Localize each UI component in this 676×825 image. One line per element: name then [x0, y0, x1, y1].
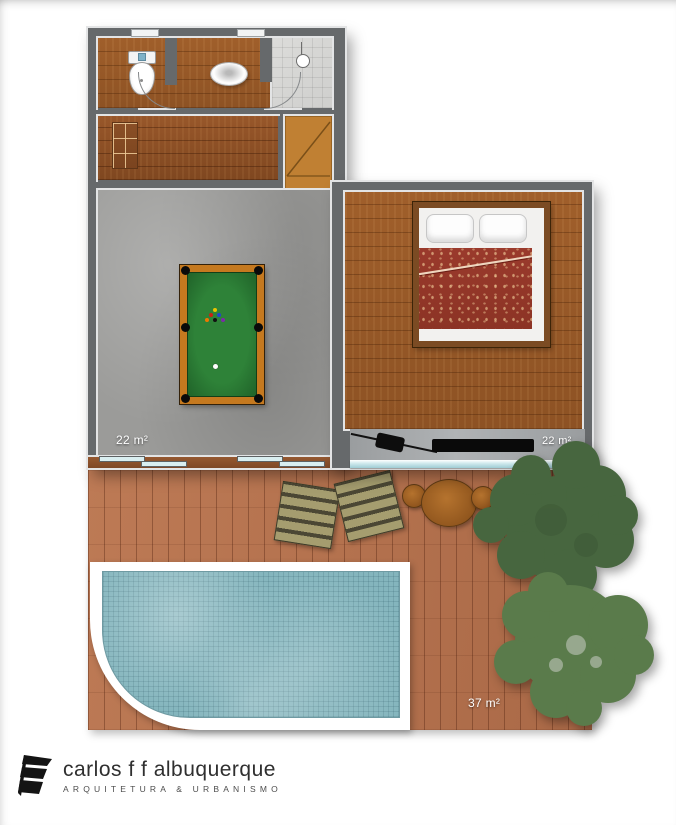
wall-segment [98, 180, 278, 190]
game-room-area-label: 22 m² [116, 433, 148, 447]
swimming-pool [90, 562, 410, 730]
deck-lounger-2 [334, 470, 405, 542]
sliding-glass-door [142, 462, 186, 466]
sliding-glass-door [238, 457, 282, 461]
exterior-wall [88, 455, 345, 468]
billiard-ball [221, 318, 225, 322]
bedroom-wing: 22 m² [332, 182, 592, 468]
billiard-table [180, 265, 264, 404]
table-pocket [254, 394, 263, 403]
table-pocket [254, 323, 263, 332]
billiard-ball [213, 318, 217, 322]
toilet-flush-button [138, 53, 146, 61]
billiard-ball [209, 313, 213, 317]
window [238, 30, 264, 36]
table-pocket [181, 323, 190, 332]
table-pocket [181, 266, 190, 275]
double-bed [413, 202, 550, 347]
logo-name: carlos f f albuquerque [63, 759, 282, 780]
pool-water [102, 571, 400, 718]
bedroom [345, 192, 582, 429]
game-room: 22 m² [98, 190, 332, 455]
logo-tagline: ARQUITETURA & URBANISMO [63, 784, 282, 794]
wall-segment [98, 108, 138, 116]
floor-plan: 37 m² [88, 28, 592, 734]
closet-shelves [113, 123, 137, 168]
tree-canopies [456, 440, 676, 740]
logo-icon [16, 752, 54, 800]
deck-lounger-1 [274, 481, 341, 549]
barbecue-grill [354, 431, 434, 457]
wall-segment [176, 108, 264, 116]
billiard-ball [213, 308, 217, 312]
billiard-ball [205, 318, 209, 322]
sliding-glass-door [280, 462, 324, 466]
washbasin-icon [210, 62, 248, 86]
shower-head-icon [296, 54, 310, 68]
architect-logo: carlos f f albuquerque ARQUITETURA & URB… [16, 752, 282, 800]
duvet [419, 248, 532, 329]
pillow [426, 214, 474, 243]
table-pocket [254, 266, 263, 275]
logo-text: carlos f f albuquerque ARQUITETURA & URB… [63, 759, 282, 794]
hallway [98, 116, 278, 180]
floor-plan-canvas: 37 m² [0, 0, 676, 825]
sliding-glass-door [100, 457, 144, 461]
billiard-ball [217, 313, 221, 317]
pillow [479, 214, 527, 243]
wall-segment [302, 108, 332, 116]
table-pocket [181, 394, 190, 403]
cue-ball [213, 364, 218, 369]
left-wing: 22 m² [88, 28, 345, 468]
window [132, 30, 158, 36]
duvet-fold [419, 254, 532, 275]
grill-body [375, 432, 406, 452]
